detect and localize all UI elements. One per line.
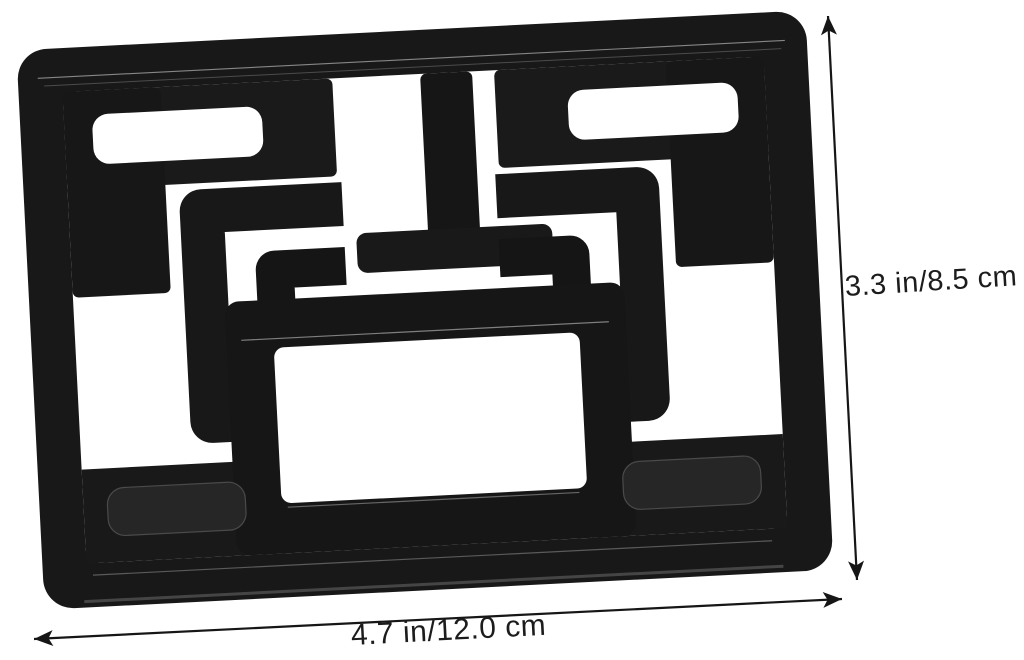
bottom-right-recess-slot (622, 455, 762, 510)
center-stem (420, 71, 480, 235)
top-left-slot (92, 106, 264, 165)
top-right-slot (567, 82, 739, 141)
stand-plate (16, 10, 833, 609)
bottom-left-recess-slot (107, 481, 247, 536)
product-dimension-image: 3.3 in/8.5 cm 4.7 in/12.0 cm (0, 0, 1024, 660)
stand-photo-svg (0, 0, 1024, 660)
